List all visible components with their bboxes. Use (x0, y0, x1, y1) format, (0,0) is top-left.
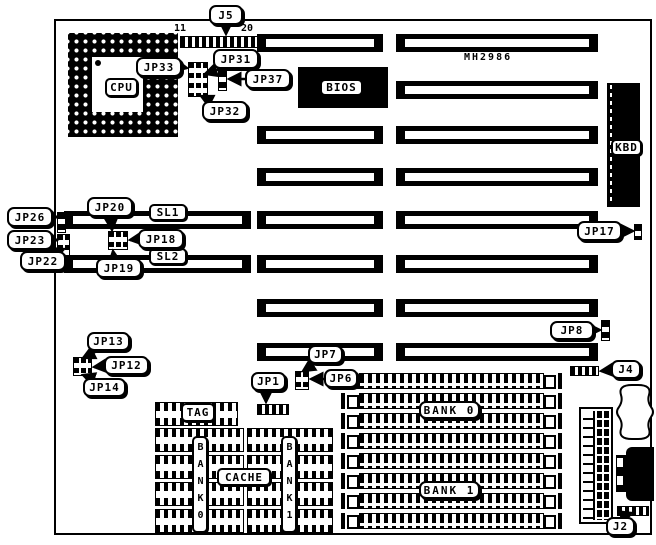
jp19-callout: JP19 (96, 258, 142, 278)
jp23-callout: JP23 (7, 230, 53, 250)
jp13-pointer (83, 351, 97, 358)
jp12-callout: JP12 (104, 356, 149, 375)
jp14-callout: JP14 (83, 378, 126, 397)
jp37-callout: JP37 (245, 69, 291, 89)
j4-pointer (601, 370, 611, 371)
kbd-label: KBD (611, 139, 642, 156)
simm-bank0-label: BANK 0 (419, 401, 480, 419)
jp1-callout: JP1 (251, 372, 286, 391)
chipset-model-text: MH2986 (464, 53, 512, 63)
j2-callout: J2 (606, 517, 635, 536)
jp7-pointer (303, 364, 314, 371)
jp20-pointer (111, 217, 112, 230)
jp33-pointer (182, 67, 187, 68)
cache-bank0-label: BANK0 (192, 436, 208, 533)
bios-label: BIOS (320, 79, 363, 96)
jp12-pointer (94, 366, 104, 367)
cpu-label: CPU (105, 78, 138, 97)
motherboard-jumper-diagram: CPU 11 20 BIOS MH2986 KBD SL1 SL2 (0, 0, 656, 545)
jp26-callout: JP26 (7, 207, 53, 227)
cache-bank1-label: BANK1 (281, 436, 297, 533)
jp18-callout: JP18 (138, 229, 184, 249)
jp33-callout: JP33 (136, 57, 182, 77)
jp19-pointer (113, 251, 114, 258)
jp31-pointer (205, 69, 220, 74)
jp7-callout: JP7 (308, 345, 343, 364)
jp6-callout: JP6 (324, 369, 358, 388)
j5-pin-11-label: 11 (174, 24, 186, 34)
jp20-callout: JP20 (87, 197, 133, 217)
jp13-callout: JP13 (87, 332, 130, 351)
jp22-callout: JP22 (20, 251, 66, 271)
j5-pin-20-label: 20 (241, 24, 253, 34)
jp8-callout: JP8 (550, 321, 594, 340)
sl1-label: SL1 (149, 204, 187, 221)
jp18-pointer (130, 239, 138, 240)
cache-label: CACHE (217, 468, 271, 486)
sl2-label: SL2 (149, 248, 187, 265)
j5-callout: J5 (209, 5, 243, 25)
cache-tag-label: TAG (181, 403, 215, 422)
jp32-callout: JP32 (202, 101, 248, 121)
simm-bank1-label: BANK 1 (419, 481, 480, 499)
jp17-callout: JP17 (577, 221, 622, 241)
jp31-callout: JP31 (213, 49, 259, 69)
j4-callout: J4 (611, 360, 641, 379)
